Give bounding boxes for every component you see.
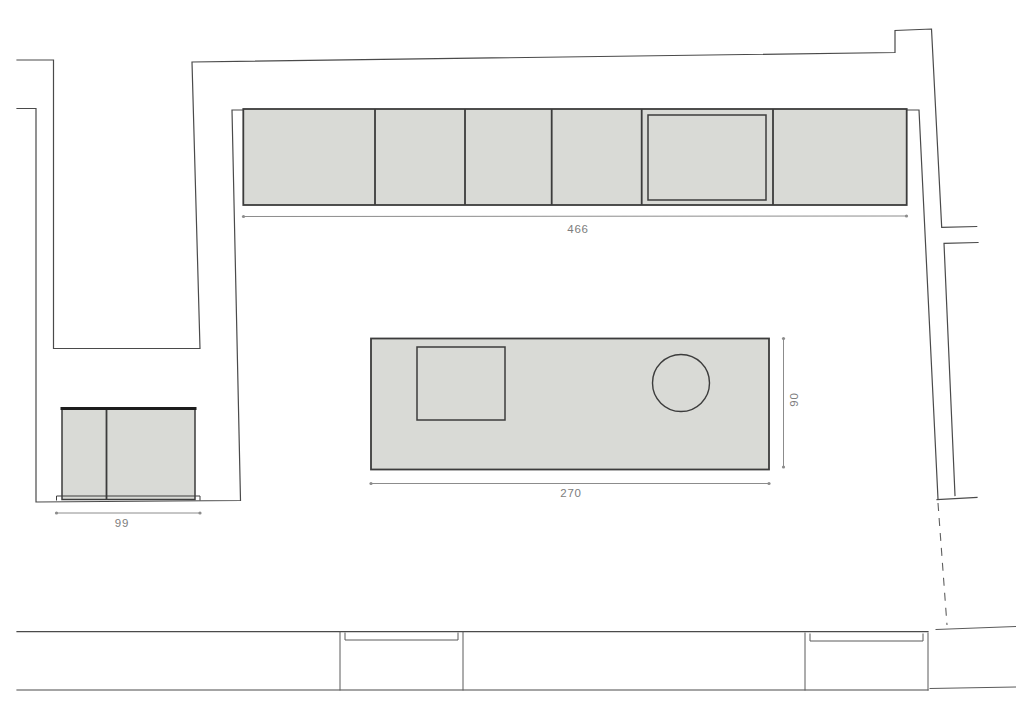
dimension-island-length-label: 270 [560, 487, 582, 499]
upper-cabinet-run [243, 109, 906, 205]
wall-right-end-cap [937, 498, 977, 500]
dimension-upper-run-label: 466 [567, 223, 589, 235]
dimension-endpoint [242, 215, 245, 218]
dimension-island-depth: 90 [782, 337, 800, 469]
dimension-endpoint [905, 214, 908, 217]
door-opening-dashed-line [938, 503, 947, 625]
dimension-sideboard: 99 [55, 511, 202, 528]
dimension-endpoint [782, 465, 785, 468]
sideboard [57, 409, 201, 501]
dimension-upper-run: 466 [242, 214, 908, 235]
window-2-frame [810, 634, 923, 641]
bottom-wall-right-segment-top [936, 627, 1016, 630]
dimension-endpoint [55, 511, 58, 514]
dimension-island-length: 270 [369, 482, 770, 499]
sideboard-body [62, 409, 195, 500]
dimension-endpoint [767, 482, 770, 485]
floor-plan-page: 466 270 90 99 [0, 0, 1016, 720]
dimension-island-depth-label: 90 [788, 392, 800, 406]
dimension-endpoint [782, 337, 785, 340]
wall-outer-right-lower [944, 243, 978, 496]
window-1 [340, 632, 463, 690]
window-1-frame [345, 633, 458, 640]
dimension-upper-run-line [244, 216, 907, 217]
floor-plan-drawing: 466 270 90 99 [0, 0, 1016, 720]
window-2 [805, 633, 928, 690]
dimension-sideboard-label: 99 [115, 517, 129, 529]
dimension-endpoint [369, 482, 372, 485]
bottom-wall-right-segment-bottom [930, 687, 1016, 689]
kitchen-island [371, 339, 769, 470]
island-body [371, 339, 769, 470]
dimension-endpoint [198, 511, 201, 514]
upper-cabinet-run-body [243, 109, 906, 205]
